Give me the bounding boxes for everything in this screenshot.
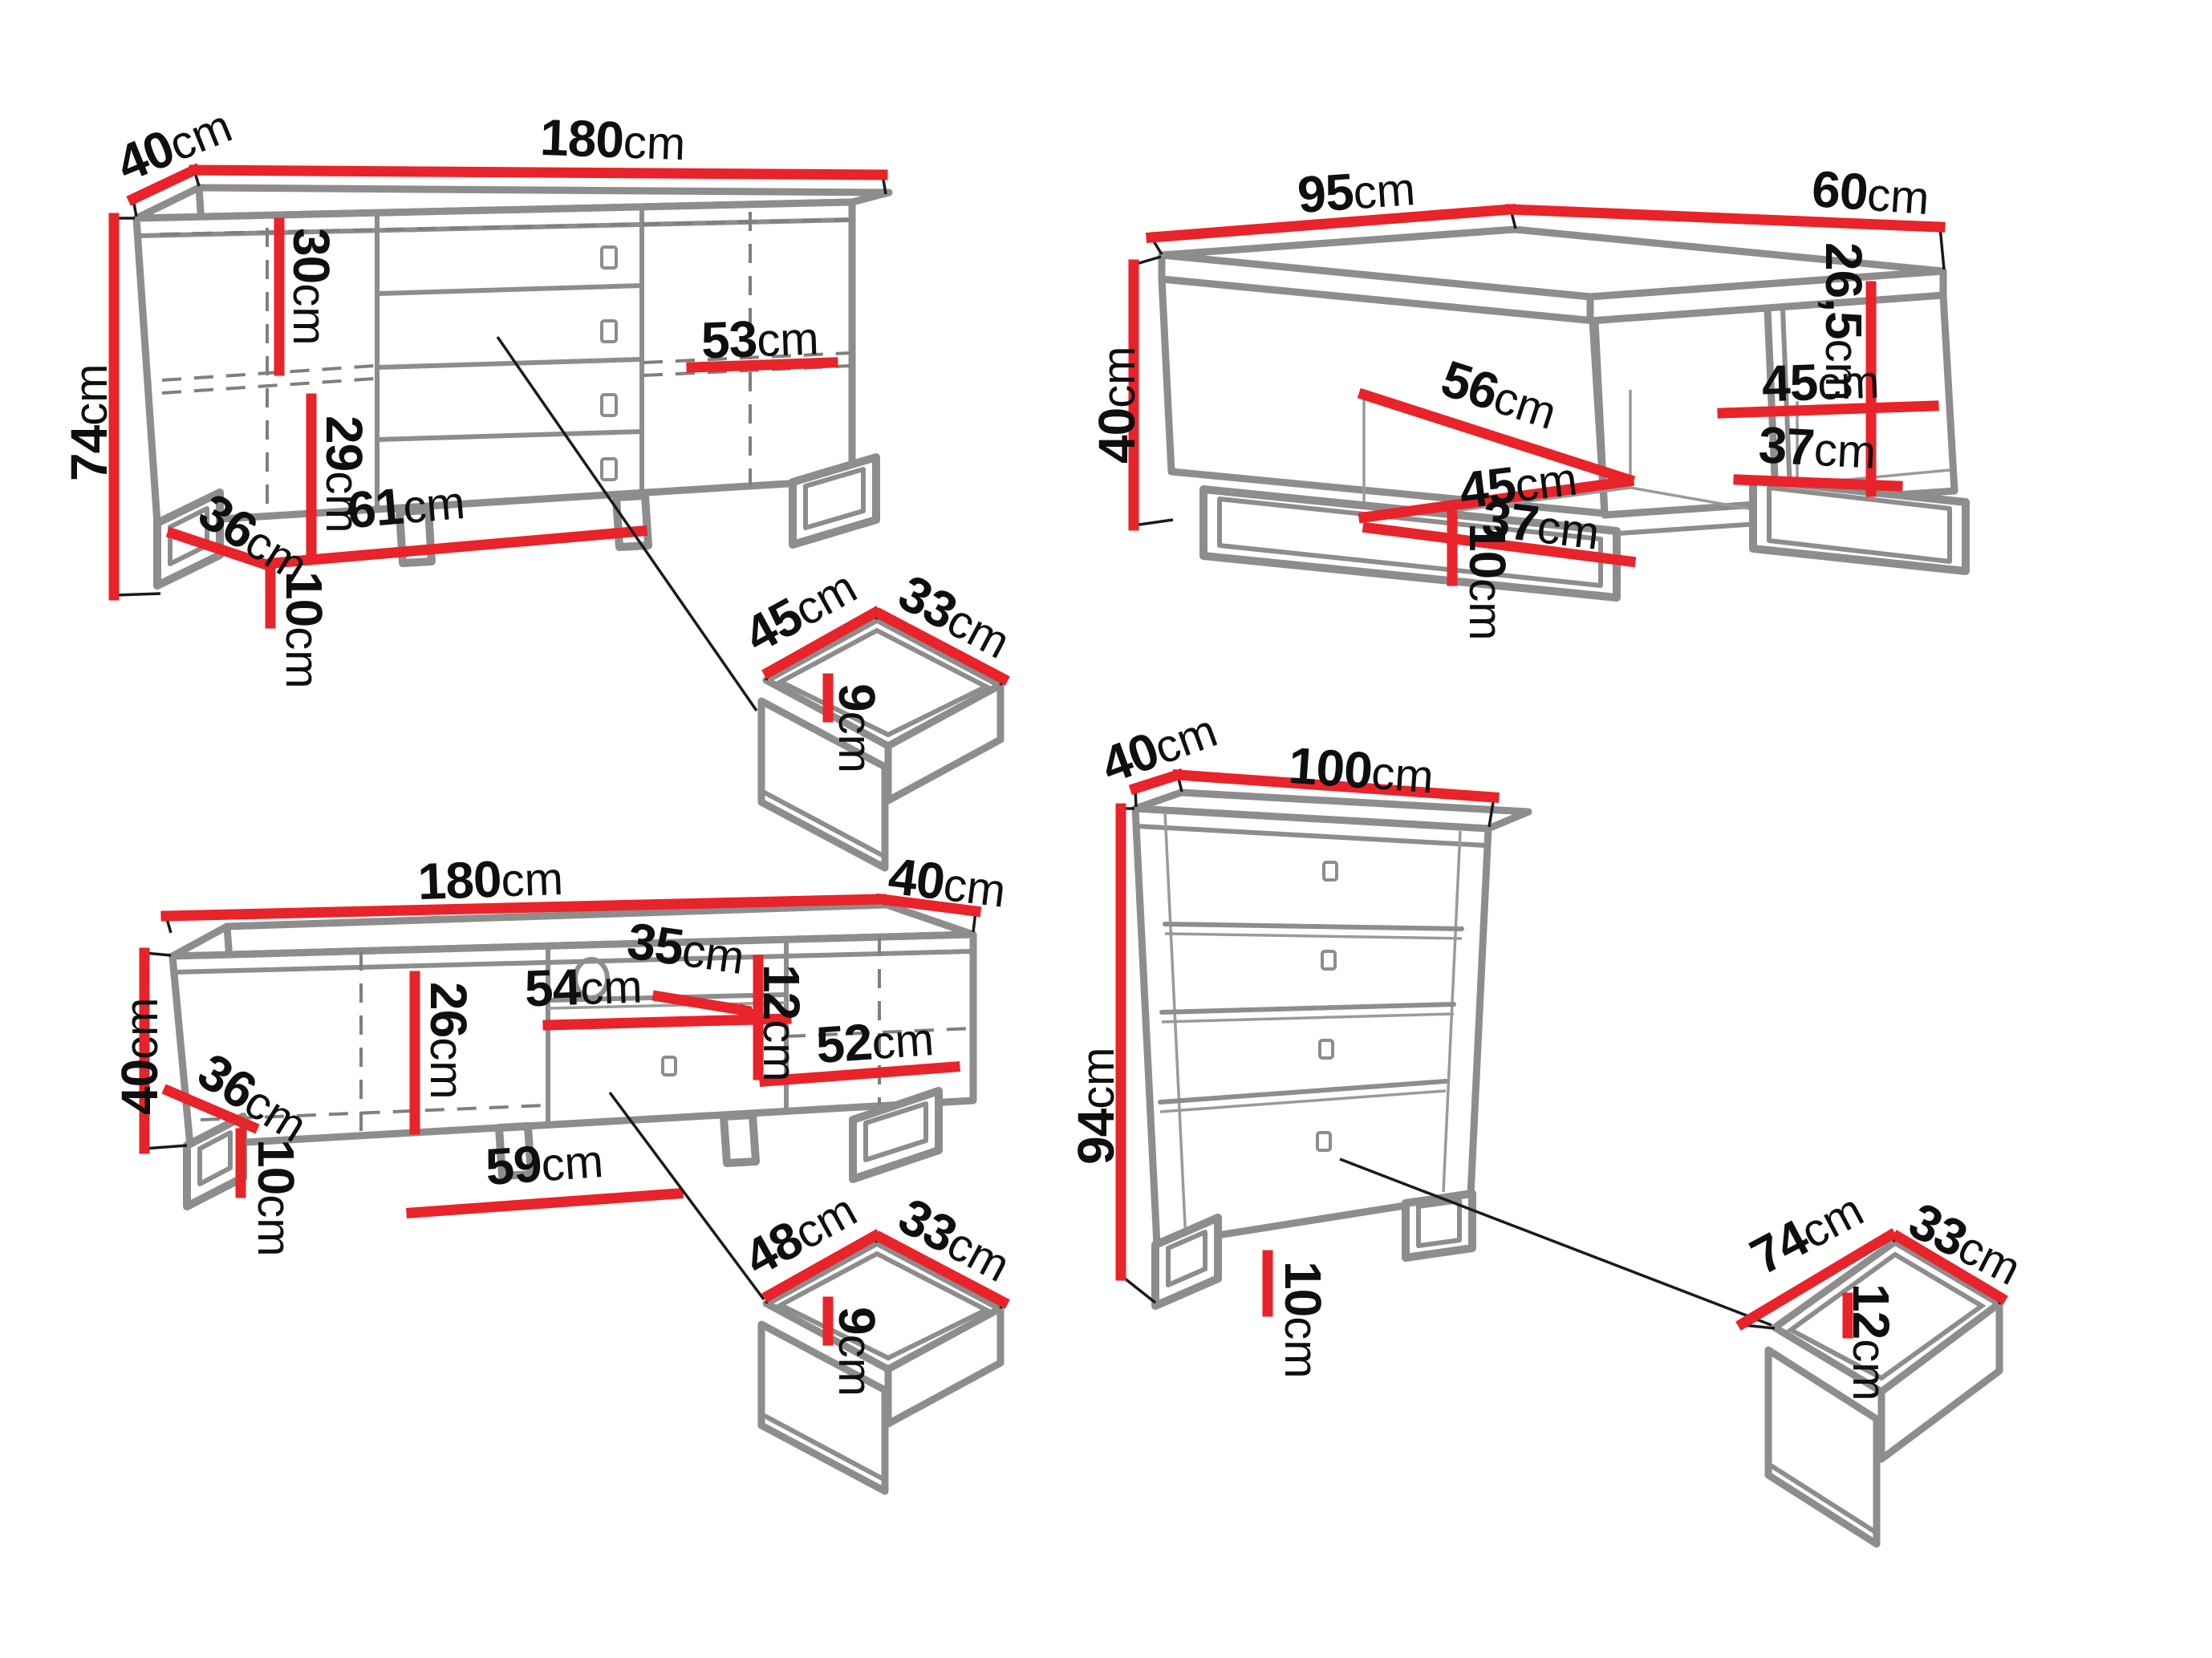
chest-height-label: 94cm (1067, 1047, 1125, 1165)
chest-drawer-handle-1 (1324, 862, 1337, 880)
coffee-table-right-stile (1943, 295, 1954, 491)
furniture-dimensions-diagram: 40cm 180cm 74cm 30cm 29cm 61cm 36cm 10cm… (0, 0, 2212, 1658)
sideboard-right-inner-width-label: 53cm (700, 307, 820, 369)
coffee-table-depth-label: 60cm (1810, 160, 1931, 225)
chest-drawer-handle-3 (1320, 1040, 1333, 1058)
sideboard-width-label: 180cm (539, 108, 687, 171)
coffee-table-drawing: 95cm 60cm 40cm 56cm 45cm 37cm 45cm 37cm … (1088, 158, 1966, 640)
coffee-table-leg-height-label: 10cm (1459, 523, 1516, 641)
tv-stand-inner-height-label: 26cm (420, 982, 477, 1100)
sideboard-inner-width-line (273, 531, 642, 563)
chest-drawing: 40cm 100cm 94cm 10cm (1067, 699, 1772, 1378)
tv-stand-width-label: 180cm (416, 848, 564, 910)
tv-stand-drawer-inner-height-label: 12cm (753, 964, 810, 1082)
coffee-table-height-label: 40cm (1088, 346, 1146, 464)
tv-stand-shelf-depth-line (548, 1019, 786, 1025)
tv-stand-right-inner-width-label: 52cm (814, 1008, 936, 1074)
tv-stand-height-label: 40cm (111, 997, 168, 1115)
chest-drawer-handle-4 (1317, 1133, 1330, 1150)
tv-stand-left-inner-width-line (412, 1194, 678, 1213)
tv-stand-left-inner-width-label: 59cm (484, 1130, 605, 1196)
tv-stand-drawer-handle (663, 1057, 676, 1075)
sideboard-drawer-handle-4 (602, 459, 616, 480)
tv-stand-drawer-detail-drawing: 48cm 33cm 9cm (735, 1180, 1021, 1491)
sideboard-drawer-handle-1 (602, 247, 616, 268)
tv-stand-leg-height-label: 10cm (247, 1139, 305, 1257)
sideboard-drawer-handle-3 (602, 395, 616, 416)
sideboard-height-label: 74cm (60, 363, 118, 481)
chest-leg-height-label: 10cm (1274, 1261, 1332, 1379)
sideboard-drawer-handle-2 (602, 321, 616, 342)
chest-width-label: 100cm (1287, 736, 1436, 804)
tv-stand-drawer-inner-height-label: 9cm (828, 1307, 886, 1397)
sideboard-center-leg-2 (616, 496, 648, 547)
sideboard-drawer-detail-drawing: 45cm 33cm 9cm (735, 557, 1021, 868)
chest-drawer-inner-height-label: 12cm (1842, 1283, 1900, 1401)
sideboard-inner-width-label: 61cm (345, 472, 467, 539)
sideboard-leg-height-label: 10cm (275, 571, 333, 689)
coffee-table-right-shelf-depth-label: 37cm (1757, 416, 1877, 480)
sideboard-drawer-inner-height-label: 9cm (828, 683, 886, 773)
chest-right-leg-inner (1419, 1201, 1459, 1246)
coffee-table-inner-height-label: 26,5cm (1815, 242, 1873, 401)
chest-front-face (1135, 809, 1488, 1245)
sideboard-upper-inner-height-label: 30cm (282, 228, 340, 346)
chest-drawer-detail-drawing: 74cm 33cm 12cm (1741, 1179, 2031, 1544)
tv-stand-center-leg-2 (724, 1115, 756, 1163)
chest-drawer-handle-2 (1322, 951, 1335, 969)
sideboard-width-dimension-line (194, 170, 883, 175)
coffee-table-width-label: 95cm (1296, 158, 1417, 224)
